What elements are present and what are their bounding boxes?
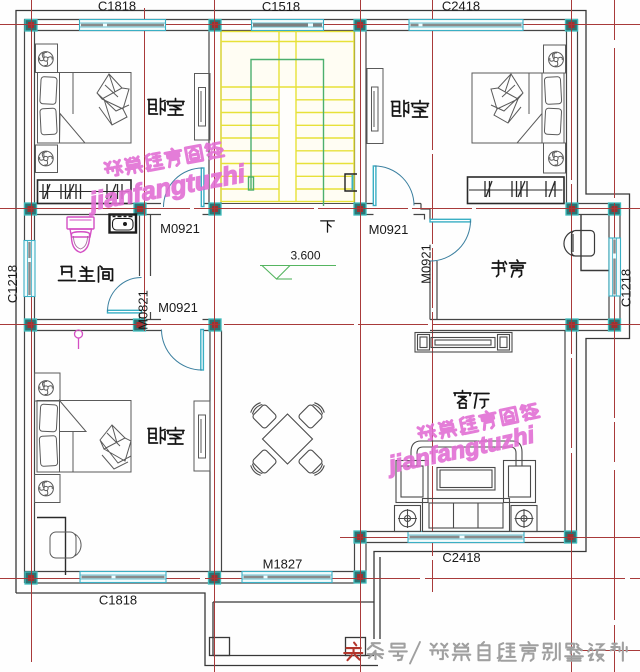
svg-text:C2418: C2418 — [442, 0, 480, 14]
svg-text:M0921: M0921 — [158, 300, 198, 315]
svg-text:3.600: 3.600 — [290, 249, 320, 263]
svg-text:C1218: C1218 — [619, 269, 634, 307]
svg-text:C1218: C1218 — [5, 265, 20, 303]
svg-text:C1518: C1518 — [262, 0, 300, 14]
svg-text:M0821: M0821 — [136, 290, 151, 330]
svg-text:C1818: C1818 — [98, 0, 136, 14]
svg-text:M0921: M0921 — [160, 221, 200, 236]
svg-text:C2418: C2418 — [442, 550, 480, 565]
svg-text:M0921: M0921 — [419, 244, 434, 284]
svg-text:M0921: M0921 — [369, 222, 409, 237]
svg-text:C1818: C1818 — [99, 593, 137, 608]
svg-text:M1827: M1827 — [263, 557, 303, 572]
